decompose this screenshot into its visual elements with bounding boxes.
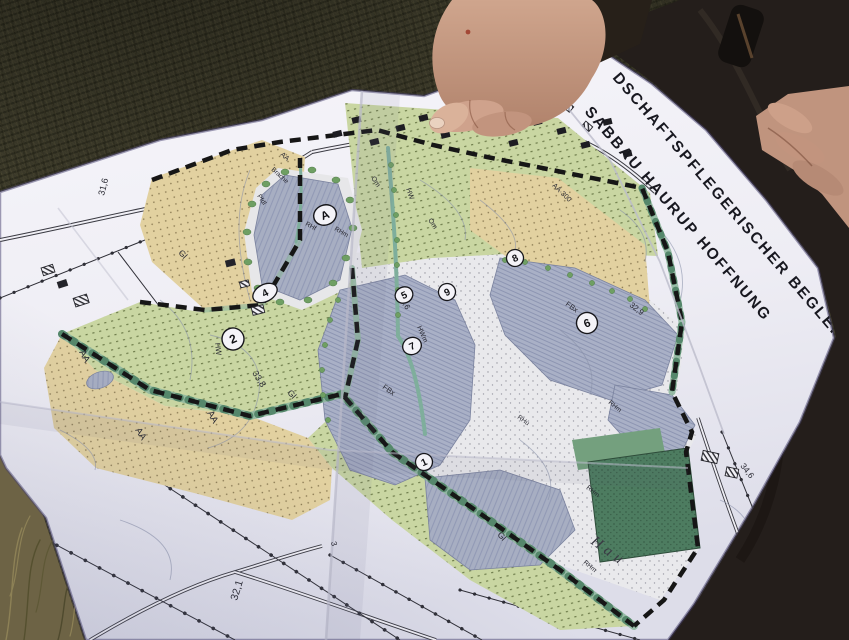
paper-shading	[0, 52, 834, 640]
skin-mark	[466, 30, 471, 35]
map-photo: 31,6 32,1 32,6 32,9 33,8 34,6 AA AA AA A…	[0, 0, 849, 640]
outdoor-photo-scene: 31,6 32,1 32,6 32,9 33,8 34,6 AA AA AA A…	[0, 0, 849, 640]
